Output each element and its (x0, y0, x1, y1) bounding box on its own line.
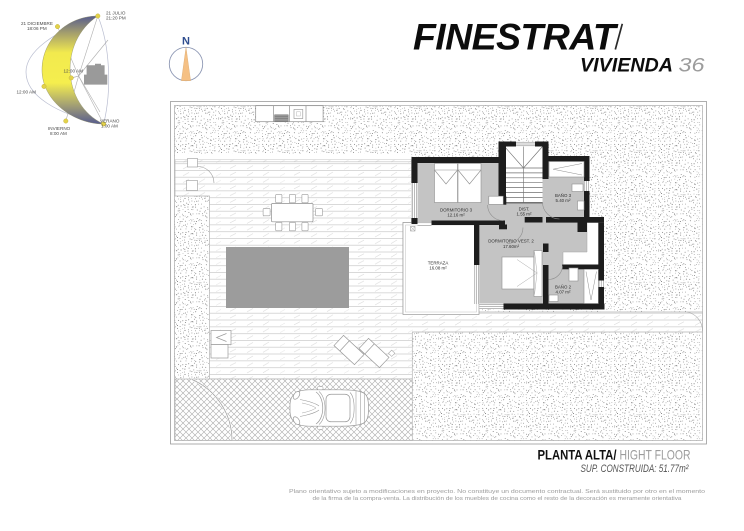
svg-text:8:00 AM: 8:00 AM (50, 131, 67, 136)
svg-text:PLANTA ALTA/: PLANTA ALTA/ (538, 448, 617, 463)
svg-text:HIGHT FLOOR: HIGHT FLOOR (620, 448, 691, 463)
svg-text:12.16 m²: 12.16 m² (447, 213, 465, 218)
svg-text:36: 36 (679, 55, 705, 77)
svg-text:de la firma de la compra-venta: de la firma de la compra-venta. La distr… (313, 496, 682, 502)
svg-text:DORMITORIO VEST. 2: DORMITORIO VEST. 2 (488, 239, 534, 244)
svg-text:FINESTRAT: FINESTRAT (413, 16, 619, 58)
svg-text:5.40 m²: 5.40 m² (556, 198, 571, 203)
svg-text:12:00 AM: 12:00 AM (64, 69, 84, 74)
svg-text:Plano orientativo sujeto a mod: Plano orientativo sujeto a modificacione… (289, 489, 705, 495)
svg-text:1:00 AM: 1:00 AM (101, 124, 118, 129)
svg-text:SUP. CONSTRUIDA: 51.77m²: SUP. CONSTRUIDA: 51.77m² (581, 463, 689, 475)
svg-text:12:00 AM: 12:00 AM (17, 90, 37, 95)
svg-text:16.08 m²: 16.08 m² (429, 266, 447, 271)
svg-text:18:06 PM: 18:06 PM (27, 26, 47, 31)
svg-text:VIVIENDA: VIVIENDA (580, 55, 673, 77)
svg-text:21:20 PM: 21:20 PM (106, 16, 126, 21)
svg-text:4.07 m²: 4.07 m² (556, 290, 571, 295)
svg-text:1.55 m²: 1.55 m² (517, 212, 532, 217)
svg-text:17.60m²: 17.60m² (503, 244, 520, 249)
svg-text:N: N (182, 36, 190, 48)
